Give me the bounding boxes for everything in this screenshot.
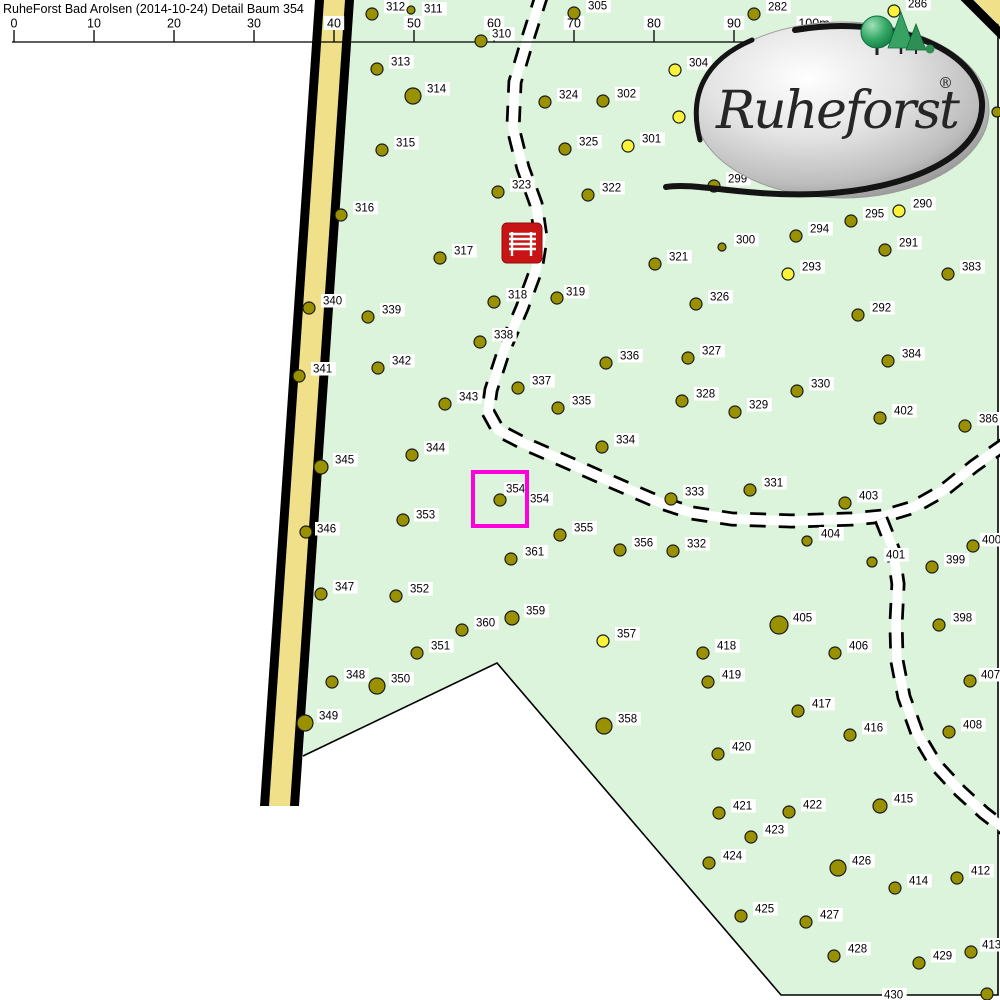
tree-dot (926, 561, 938, 573)
tree-dot (505, 611, 519, 625)
tree-dot (959, 420, 971, 432)
tree-label: 315 (396, 138, 415, 150)
tree-dot (913, 957, 925, 969)
tree-label: 343 (459, 392, 478, 404)
tree-dot (488, 296, 500, 308)
tree-label: 342 (392, 356, 411, 368)
tree-label: 344 (426, 443, 446, 455)
tree-label: 318 (508, 290, 527, 302)
selected-tree-label: 354 (530, 494, 550, 506)
tree-label: 353 (416, 510, 435, 522)
tree-label: 319 (566, 287, 585, 299)
tree-label: 323 (512, 180, 531, 192)
tree-label: 316 (355, 203, 374, 215)
tree-label: 282 (768, 2, 787, 14)
tree-label: 332 (687, 539, 706, 551)
tree-dot (792, 705, 804, 717)
tree-label: 424 (723, 851, 743, 863)
tree-dot (554, 529, 566, 541)
tree-label: 346 (317, 524, 336, 536)
tree-dot (682, 352, 694, 364)
tree-dot (390, 590, 402, 602)
tree-label: 407 (981, 670, 1000, 682)
logo-registered-mark: ® (938, 74, 953, 92)
tree-label: 347 (335, 582, 354, 594)
tree-dot (596, 718, 612, 734)
tree-label: 420 (732, 742, 751, 754)
tree-label: 292 (872, 303, 891, 315)
tree-dot (406, 449, 418, 461)
tree-dot (673, 111, 685, 123)
scale-tick-label: 90 (727, 17, 741, 31)
tree-dot (405, 88, 421, 104)
tree-dot (888, 5, 900, 17)
tree-label: 331 (764, 478, 783, 490)
tree-label: 291 (899, 238, 918, 250)
tree-label: 300 (736, 235, 755, 247)
tree-dot (718, 243, 726, 251)
tree-label: 286 (908, 0, 927, 11)
tree-dot (879, 244, 891, 256)
tree-dot (494, 494, 506, 506)
tree-dot (690, 298, 702, 310)
scale-tick-label: 30 (247, 17, 261, 31)
tree-label: 401 (886, 550, 905, 562)
tree-label: 416 (864, 723, 883, 735)
tree-dot (748, 8, 760, 20)
scale-tick-label: 20 (167, 17, 181, 31)
tree-dot (293, 370, 305, 382)
tree-dot (297, 715, 313, 731)
tree-label: 426 (852, 856, 871, 868)
tree-dot (713, 807, 725, 819)
tree-label: 334 (616, 435, 636, 447)
bench-icon (502, 223, 542, 263)
tree-label: 358 (618, 714, 637, 726)
tree-dot (614, 544, 626, 556)
tree-dot (889, 882, 901, 894)
page-title: RuheForst Bad Arolsen (2014-10-24) Detai… (3, 2, 304, 16)
tree-label: 384 (902, 349, 922, 361)
tree-label: 329 (749, 400, 768, 412)
tree-dot (992, 107, 1000, 117)
tree-dot (942, 268, 954, 280)
tree-label: 419 (722, 670, 741, 682)
tree-dot (434, 252, 446, 264)
tree-dot (407, 6, 415, 14)
tree-dot (867, 557, 877, 567)
tree-dot (735, 910, 747, 922)
tree-dot (372, 362, 384, 374)
scale-tick-label: 50 (407, 17, 421, 31)
tree-label: 427 (820, 910, 839, 922)
tree-label: 333 (685, 487, 704, 499)
map-canvas: 0102030405060708090100m RuheForst Bad Ar… (0, 0, 1000, 1000)
tree-dot (951, 872, 963, 884)
tree-dot (702, 676, 714, 688)
tree-label: 302 (617, 89, 636, 101)
tree-label: 417 (812, 699, 831, 711)
tree-dot (669, 64, 681, 76)
tree-dot (829, 647, 841, 659)
tree-dot (933, 619, 945, 631)
tree-label: 314 (427, 84, 447, 96)
tree-label: 310 (492, 29, 511, 41)
tree-dot (369, 678, 385, 694)
tree-dot (411, 647, 423, 659)
map-viewer: 0102030405060708090100m RuheForst Bad Ar… (0, 0, 1000, 1000)
tree-dot (397, 514, 409, 526)
tree-dot (314, 460, 328, 474)
scale-tick-label: 80 (647, 17, 661, 31)
tree-dot (475, 35, 487, 47)
tree-label: 350 (391, 674, 410, 686)
tree-dot (873, 799, 887, 813)
tree-label: 352 (410, 584, 429, 596)
tree-label: 355 (574, 523, 593, 535)
tree-label: 399 (946, 555, 965, 567)
tree-dot (539, 96, 551, 108)
tree-dot (315, 588, 327, 600)
tree-dot (791, 385, 803, 397)
tree-dot (622, 140, 634, 152)
tree-dot (474, 336, 486, 348)
tree-label: 400 (982, 535, 1000, 547)
tree-label: 412 (971, 866, 990, 878)
tree-label: 341 (313, 364, 332, 376)
tree-label: 326 (710, 292, 729, 304)
tree-label: 423 (765, 825, 784, 837)
tree-dot (697, 647, 709, 659)
tree-label: 386 (979, 414, 998, 426)
tree-label: 336 (620, 351, 639, 363)
tree-label: 345 (335, 455, 354, 467)
tree-dot (967, 540, 979, 552)
tree-dot (981, 988, 993, 1000)
tree-label: 330 (811, 379, 830, 391)
tree-dot (559, 143, 571, 155)
tree-label: 339 (382, 305, 401, 317)
tree-dot (676, 395, 688, 407)
tree-label: 413 (982, 940, 1000, 952)
tree-label: 414 (909, 876, 929, 888)
selected-tree-label: 354 (506, 484, 526, 496)
scale-tick-label: 0 (11, 17, 18, 31)
tree-dot (830, 860, 846, 876)
tree-dot (744, 484, 756, 496)
tree-dot (596, 441, 608, 453)
tree-label: 338 (494, 330, 513, 342)
tree-dot (326, 676, 338, 688)
tree-label: 301 (642, 134, 661, 146)
tree-dot (745, 831, 757, 843)
tree-label: 337 (532, 376, 551, 388)
tree-dot (844, 729, 856, 741)
tree-dot (770, 616, 788, 634)
tree-label: 327 (702, 346, 721, 358)
tree-label: 324 (559, 90, 579, 102)
tree-dot (882, 355, 894, 367)
tree-label: 311 (424, 4, 442, 16)
tree-dot (943, 726, 955, 738)
tree-dot (303, 302, 315, 314)
tree-label: 293 (802, 262, 821, 274)
tree-label: 294 (810, 224, 830, 236)
tree-label: 359 (526, 606, 545, 618)
logo-wordmark: Ruheforst (715, 81, 960, 141)
tree-dot (512, 382, 524, 394)
tree-label: 421 (733, 801, 752, 813)
tree-dot (551, 292, 563, 304)
tree-label: 312 (386, 2, 405, 14)
tree-label: 430 (884, 990, 903, 1000)
tree-dot (712, 748, 724, 760)
tree-label: 383 (962, 262, 981, 274)
tree-dot (782, 268, 794, 280)
tree-label: 405 (793, 613, 812, 625)
tree-dot (582, 189, 594, 201)
tree-label: 422 (803, 800, 822, 812)
tree-dot (371, 63, 383, 75)
tree-dot (300, 526, 312, 538)
tree-dot (828, 950, 840, 962)
tree-dot (649, 258, 661, 270)
tree-label: 348 (346, 670, 365, 682)
tree-dot (965, 946, 977, 958)
tree-label: 418 (717, 641, 736, 653)
tree-label: 305 (588, 1, 607, 13)
tree-label: 360 (476, 618, 495, 630)
tree-label: 398 (953, 613, 972, 625)
tree-dot (845, 215, 857, 227)
tree-label: 408 (963, 720, 982, 732)
tree-label: 351 (431, 641, 450, 653)
tree-dot (552, 402, 564, 414)
tree-label: 321 (669, 252, 688, 264)
tree-dot (376, 144, 388, 156)
tree-label: 425 (755, 904, 774, 916)
tree-dot (893, 205, 905, 217)
scale-tick-label: 40 (327, 17, 341, 31)
tree-dot (800, 916, 812, 928)
tree-label: 304 (689, 58, 709, 70)
tree-dot (492, 186, 504, 198)
tree-label: 428 (848, 944, 867, 956)
tree-label: 429 (933, 951, 952, 963)
tree-dot (568, 7, 580, 19)
tree-label: 317 (454, 246, 473, 258)
tree-dot (802, 536, 812, 546)
tree-dot (597, 95, 609, 107)
tree-dot (964, 675, 976, 687)
tree-label: 295 (865, 209, 884, 221)
tree-label: 402 (894, 406, 913, 418)
tree-dot (505, 553, 517, 565)
scale-tick-label: 10 (87, 17, 101, 31)
tree-dot (665, 493, 677, 505)
tree-label: 349 (319, 711, 338, 723)
tree-dot (852, 309, 864, 321)
tree-label: 357 (617, 629, 636, 641)
tree-label: 406 (849, 641, 868, 653)
tree-dot (874, 412, 886, 424)
tree-label: 335 (572, 396, 591, 408)
tree-label: 322 (602, 183, 621, 195)
tree-dot (790, 230, 802, 242)
tree-dot (597, 635, 609, 647)
tree-dot (783, 806, 795, 818)
tree-dot (667, 545, 679, 557)
tree-label: 313 (391, 57, 410, 69)
tree-label: 328 (696, 389, 715, 401)
tree-label: 290 (913, 199, 932, 211)
tree-dot (335, 209, 347, 221)
tree-dot (456, 624, 468, 636)
tree-dot (366, 8, 378, 20)
tree-label: 403 (859, 491, 878, 503)
tree-dot (600, 357, 612, 369)
tree-dot (729, 406, 741, 418)
tree-dot (362, 311, 374, 323)
tree-label: 356 (634, 538, 653, 550)
tree-label: 404 (821, 529, 841, 541)
tree-label: 361 (525, 547, 544, 559)
tree-dot (439, 398, 451, 410)
tree-label: 325 (579, 137, 598, 149)
tree-dot (839, 497, 851, 509)
tree-label: 415 (894, 794, 913, 806)
tree-label: 340 (323, 296, 342, 308)
tree-dot (703, 857, 715, 869)
